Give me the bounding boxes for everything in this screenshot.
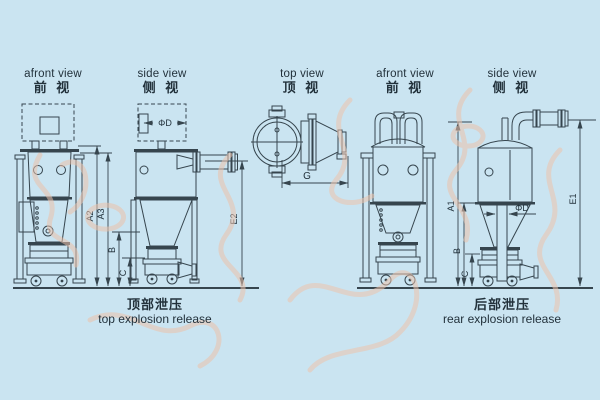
view-header-zh: 前 视 bbox=[24, 81, 82, 95]
view-header-zh: 侧 视 bbox=[137, 81, 186, 95]
view-header-front-2: afront view 前 视 bbox=[376, 68, 434, 95]
dim-label-c-left: C bbox=[118, 269, 128, 276]
dim-label-e1: E1 bbox=[568, 193, 578, 204]
rear-vent-pipe bbox=[497, 205, 507, 281]
dim-label-phi-d-left: ΦD bbox=[158, 118, 172, 128]
caption-zh: 顶部泄压 bbox=[98, 297, 211, 312]
technical-drawing-canvas: A2 A3 B C E2 ΦD G A1 B C bbox=[0, 0, 600, 400]
technical-drawing-page: A2 A3 B C E2 ΦD G A1 B C bbox=[0, 0, 600, 400]
view-header-side-2: side view 侧 视 bbox=[487, 68, 536, 95]
dim-label-a3: A3 bbox=[96, 208, 106, 219]
dim-label-phi-d-right: ΦD bbox=[515, 203, 529, 213]
top-view-drawing bbox=[251, 106, 346, 177]
caption-rear-release: 后部泄压 rear explosion release bbox=[443, 297, 561, 326]
view-header-front-1: afront view 前 视 bbox=[24, 68, 82, 95]
view-header-zh: 前 视 bbox=[376, 81, 434, 95]
caption-zh: 后部泄压 bbox=[443, 297, 561, 312]
dim-label-b-right: B bbox=[452, 248, 462, 254]
watermark bbox=[35, 90, 560, 370]
caption-en: top explosion release bbox=[98, 312, 211, 326]
view-header-zh: 顶 视 bbox=[280, 81, 324, 95]
caption-top-release: 顶部泄压 top explosion release bbox=[98, 297, 211, 326]
view-header-zh: 侧 视 bbox=[487, 81, 536, 95]
dim-label-c-right: C bbox=[460, 270, 470, 277]
dim-label-b-left: B bbox=[107, 247, 117, 253]
dim-label-g: G bbox=[303, 171, 311, 182]
view-header-top: top view 顶 视 bbox=[280, 68, 324, 95]
caption-en: rear explosion release bbox=[443, 312, 561, 326]
view-header-side-1: side view 侧 视 bbox=[137, 68, 186, 95]
